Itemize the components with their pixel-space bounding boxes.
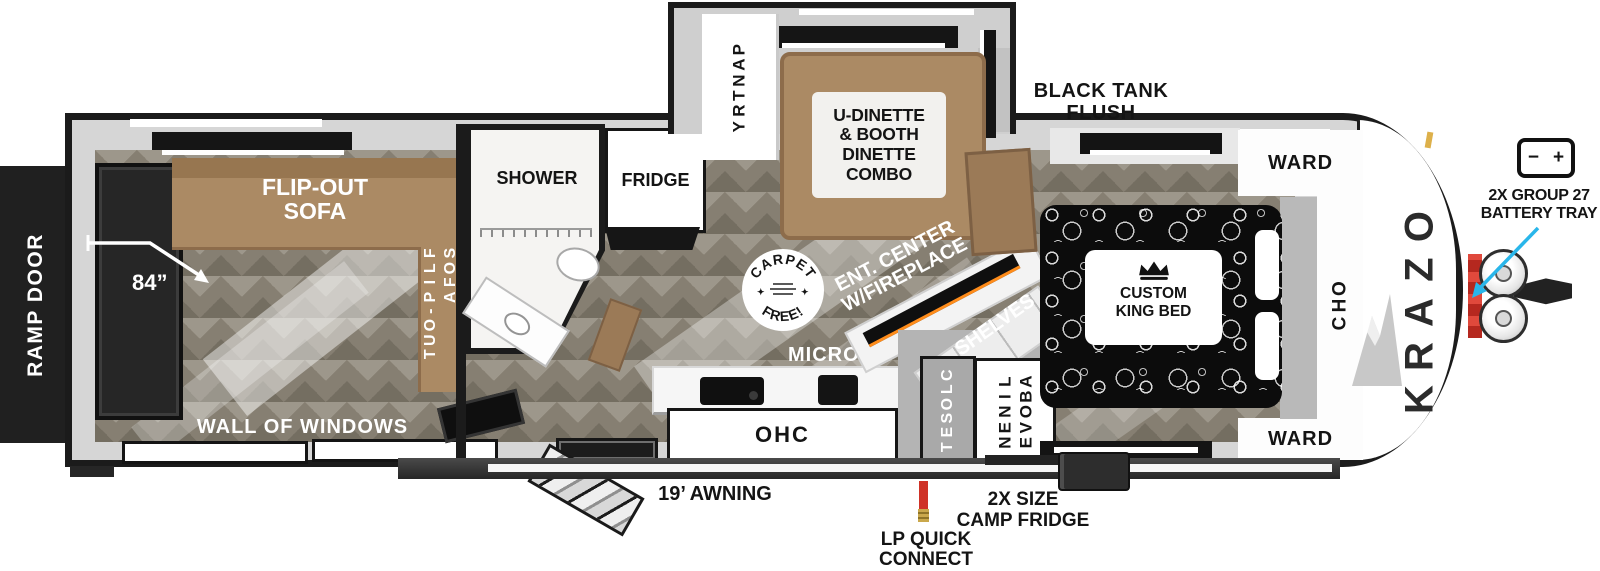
wall-of-windows-label: WALL OF WINDOWS — [185, 416, 420, 439]
propane-tank — [1479, 294, 1528, 343]
crown-icon — [1137, 260, 1171, 282]
garage-top-window — [152, 132, 352, 150]
battery-plus: + — [1553, 147, 1564, 169]
pantry-label: PANTRY — [703, 22, 775, 154]
tank-valve — [1495, 310, 1512, 327]
fridge-label: FRIDGE — [621, 170, 689, 191]
slide-roof-trim — [799, 9, 974, 15]
tank-valve — [1495, 265, 1512, 282]
dim-84-label: 84” — [132, 270, 167, 296]
awning-roll — [488, 464, 1332, 472]
black-tank-flush-label: BLACK TANK FLUSH — [1016, 80, 1186, 124]
ward-top-label: WARD — [1268, 152, 1333, 175]
slide-top-window-sill — [782, 43, 945, 48]
ward-bottom: WARD — [1238, 418, 1363, 460]
dinette-table: U-DINETTE & BOOTH DINETTE COMBO — [812, 92, 946, 198]
king-bed-label: CUSTOM KING BED — [1085, 285, 1222, 321]
fridge-front-panel — [605, 227, 700, 250]
camp-fridge-rail — [985, 455, 1059, 465]
king-bed-label-box: CUSTOM KING BED — [1085, 250, 1222, 345]
bed-pillow — [1255, 230, 1279, 300]
stabilizer-foot — [70, 466, 114, 477]
propane-tank — [1479, 249, 1528, 298]
ward-bottom-label: WARD — [1268, 428, 1333, 451]
flip-out-sofa-top-label: FLIP-OUT SOFA — [230, 168, 400, 230]
floorplan-diagram: RAMP DOOR FLIP-OUT SOFA FLIP-OUTSOFA 84”… — [0, 0, 1600, 571]
shower-door — [480, 228, 592, 237]
cooktop-knob — [749, 391, 758, 400]
camp-fridge — [1058, 452, 1130, 491]
dinette-label: U-DINETTE & BOOTH DINETTE COMBO — [833, 106, 925, 184]
garage-bottom-window — [122, 441, 308, 464]
battery-tray-label: 2X GROUP 27 BATTERY TRAY — [1478, 187, 1600, 222]
lp-quick-connect-tip — [918, 509, 929, 522]
shower-label: SHOWER — [478, 168, 596, 189]
kitchen-ohc-label: OHC — [755, 422, 810, 448]
battery-icon: − + — [1517, 138, 1575, 178]
cooktop — [700, 377, 764, 405]
sink — [500, 308, 534, 340]
camp-fridge-label: 2X SIZE CAMP FRIDGE — [938, 490, 1108, 532]
svg-text:✦: ✦ — [757, 287, 765, 297]
garage-top-window-sill — [162, 150, 344, 155]
brand-logo: OZARK — [1394, 196, 1446, 430]
closet: CLOSET — [920, 356, 976, 466]
ramp-door: RAMP DOOR — [0, 166, 72, 443]
ward-top: WARD — [1238, 130, 1363, 196]
bed-pillow — [1255, 312, 1279, 380]
garage-wall — [456, 124, 466, 462]
fridge: FRIDGE — [605, 128, 706, 233]
bedroom-top-window-sill — [1090, 150, 1210, 155]
awning-label: 19’ AWNING — [640, 483, 790, 506]
kitchen-sink — [818, 375, 858, 405]
kitchen-ohc: OHC — [667, 408, 898, 461]
lp-quick-connect-icon — [919, 481, 928, 509]
lp-quick-connect-label: LP QUICK CONNECT — [856, 530, 996, 570]
bedroom-wardrobe-steps — [964, 148, 1037, 256]
battery-minus: − — [1528, 147, 1539, 169]
clearance-light — [1425, 132, 1434, 149]
ramp-door-label: RAMP DOOR — [24, 233, 48, 377]
bed-headboard — [1280, 197, 1317, 419]
roof-trim — [130, 119, 322, 127]
micro-label: MICRO — [788, 344, 860, 367]
